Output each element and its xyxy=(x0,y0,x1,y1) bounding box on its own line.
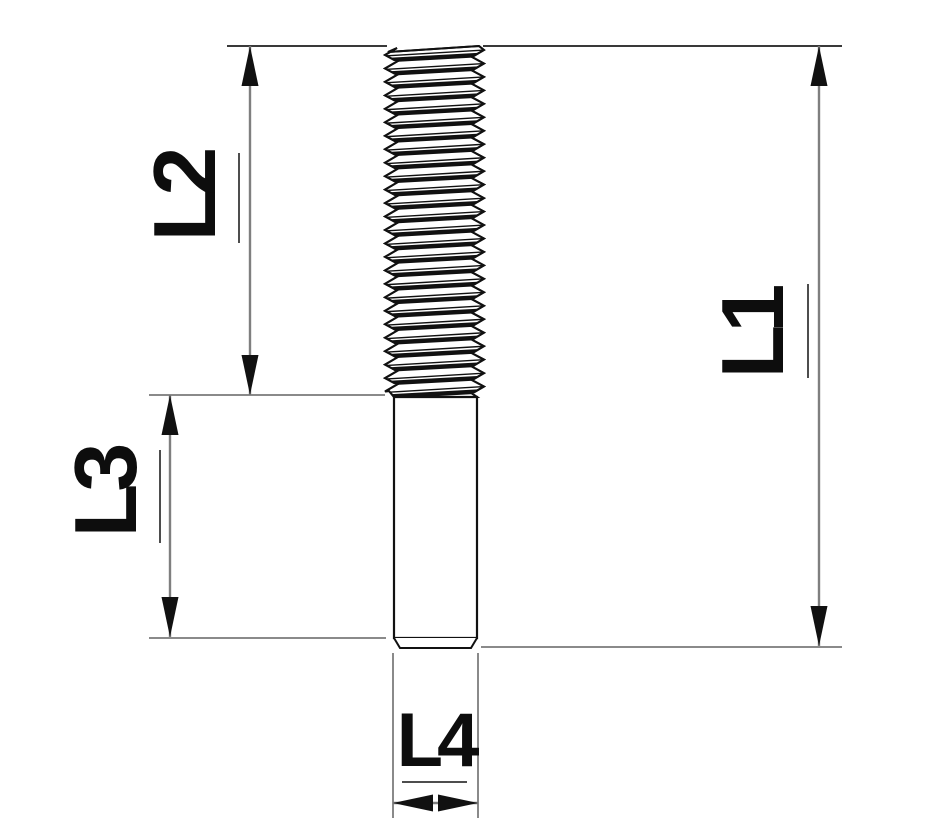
label-l1-text: L1 xyxy=(703,292,802,379)
l4-arrow-right-icon xyxy=(438,795,478,812)
label-l3-text: L3 xyxy=(56,451,155,538)
dimension-arrowheads xyxy=(162,46,828,812)
label-l2-text: L2 xyxy=(135,155,234,242)
chamfer-outline xyxy=(394,638,477,648)
l2-arrow-up-icon xyxy=(242,46,259,86)
label-l4-underline xyxy=(402,781,467,784)
drawing-canvas: L2 L3 L1 L4 xyxy=(0,0,940,820)
thread-section xyxy=(384,46,485,412)
l1-arrow-up-icon xyxy=(811,46,828,86)
extension-lines xyxy=(149,46,842,818)
label-l1-underline xyxy=(807,284,810,378)
label-l2: L2 xyxy=(141,155,229,242)
label-l4: L4 xyxy=(397,703,474,779)
l4-arrow-left-icon xyxy=(393,795,433,812)
l2-arrow-down-icon xyxy=(242,355,259,395)
label-l2-underline xyxy=(238,153,241,243)
l1-arrow-down-icon xyxy=(811,606,828,646)
shank-outline xyxy=(394,397,477,638)
dimension-lines xyxy=(170,46,819,803)
stud-dimension-drawing xyxy=(0,0,940,820)
l3-arrow-down-icon xyxy=(162,597,179,637)
label-l3: L3 xyxy=(62,451,150,538)
l3-arrow-up-icon xyxy=(162,395,179,435)
label-l1: L1 xyxy=(709,292,797,379)
stud xyxy=(384,46,485,648)
label-l4-text: L4 xyxy=(397,698,474,783)
label-l3-underline xyxy=(159,450,162,543)
